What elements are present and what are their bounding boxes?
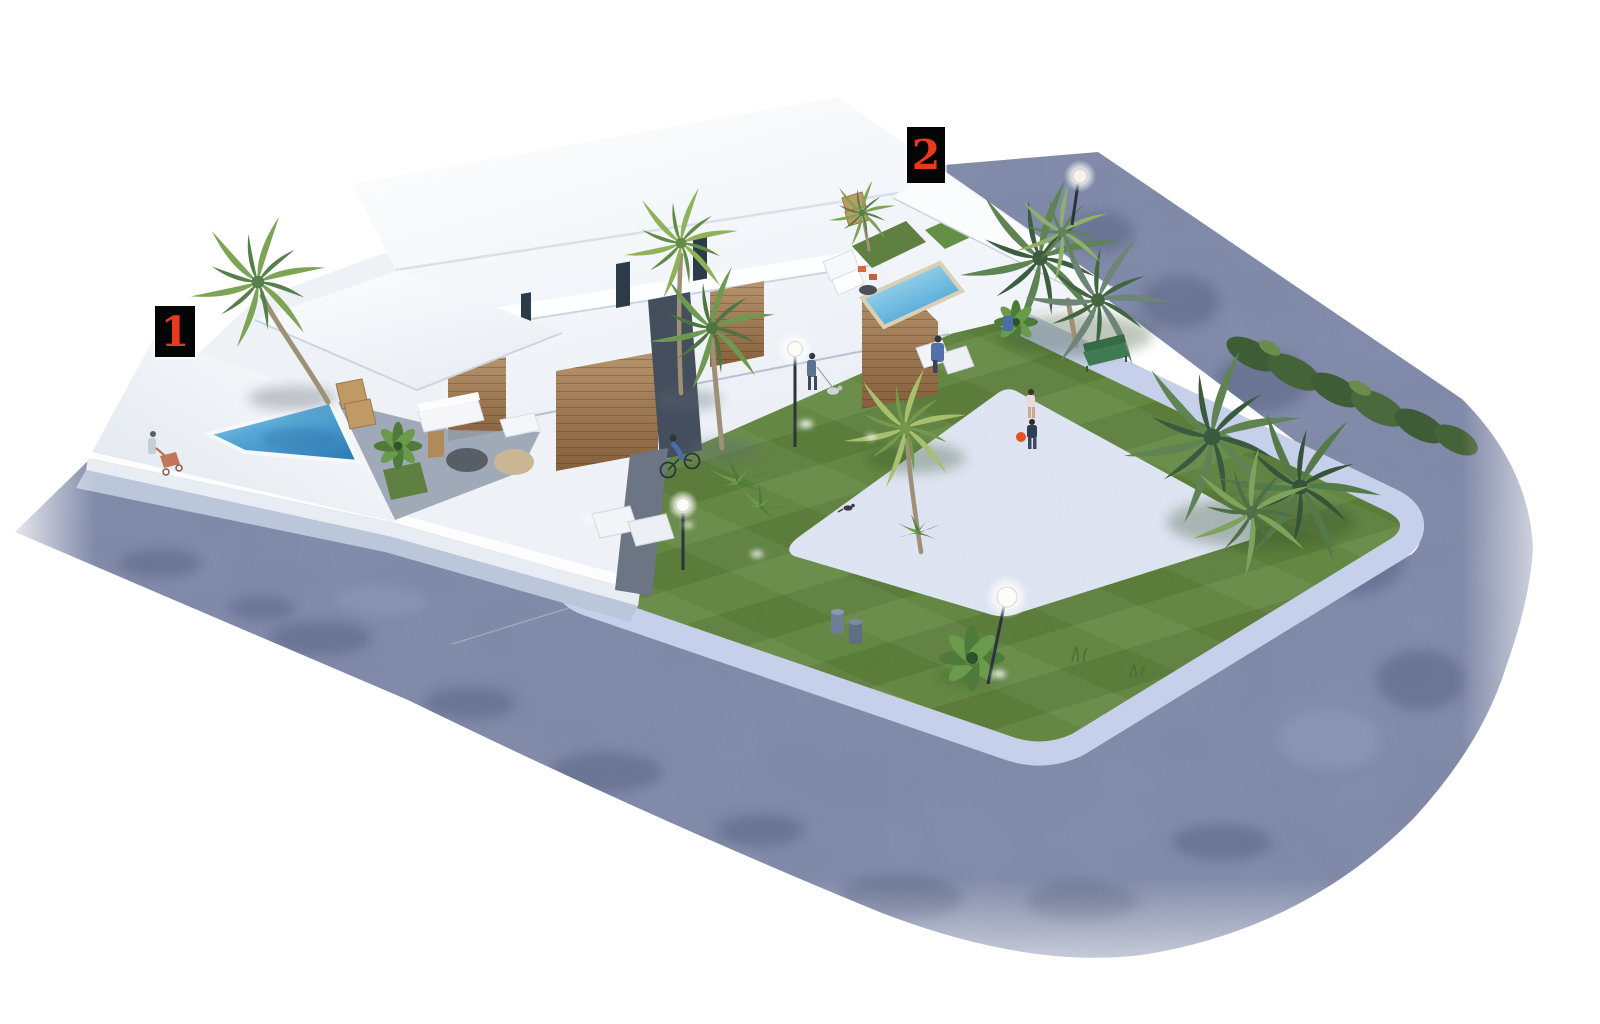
plot-marker-1[interactable]: 1 (155, 306, 195, 357)
plot-marker-2[interactable]: 2 (907, 127, 945, 183)
coffee-table (446, 448, 488, 472)
scene-render (0, 0, 1600, 1024)
orange-ball (1016, 432, 1026, 442)
jute-rug (494, 449, 534, 475)
render-canvas: 1 2 (0, 0, 1600, 1024)
blue-barrel (1003, 316, 1013, 331)
